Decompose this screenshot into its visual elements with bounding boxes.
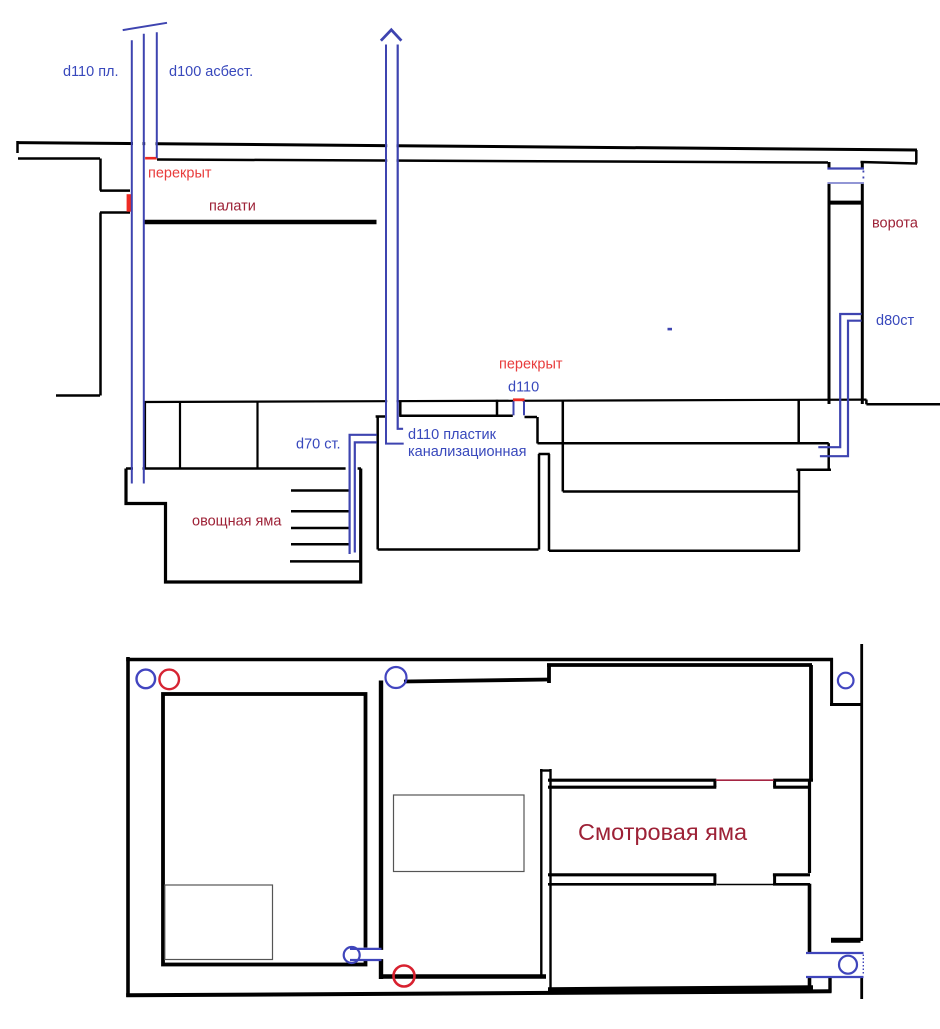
- svg-text:d70 ст.: d70 ст.: [296, 437, 341, 453]
- svg-text:d110 пластик: d110 пластик: [408, 427, 497, 443]
- svg-text:перекрыт: перекрыт: [499, 357, 563, 373]
- svg-text:канализационная: канализационная: [408, 444, 526, 460]
- svg-text:перекрыт: перекрыт: [148, 166, 212, 182]
- svg-text:d110 пл.: d110 пл.: [63, 64, 119, 80]
- svg-text:ворота: ворота: [872, 216, 919, 232]
- svg-text:d80ст: d80ст: [876, 313, 914, 329]
- svg-text:d100 асбест.: d100 асбест.: [169, 64, 253, 80]
- svg-text:палати: палати: [209, 199, 256, 215]
- svg-text:d110: d110: [508, 380, 539, 396]
- svg-text:овощная яма: овощная яма: [192, 514, 282, 530]
- svg-text:Смотровая яма: Смотровая яма: [578, 819, 748, 845]
